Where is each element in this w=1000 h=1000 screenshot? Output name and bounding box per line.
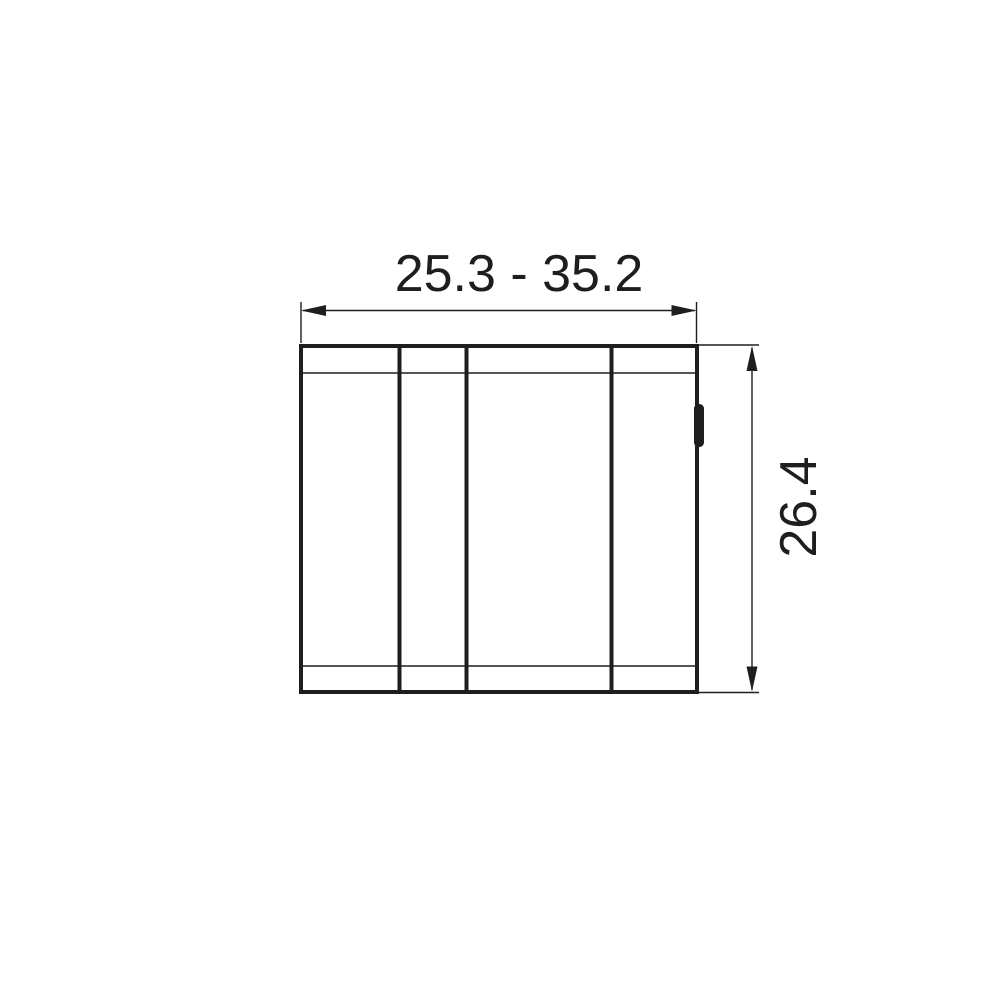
device-body-outline xyxy=(301,346,697,692)
width-arrowhead-right xyxy=(672,305,697,316)
width-dimension-label: 25.3 - 35.2 xyxy=(395,245,644,303)
drawing-canvas: 25.3 - 35.2 26.4 xyxy=(0,0,1000,1000)
height-dimension-label: 26.4 xyxy=(770,456,828,557)
width-dimension: 25.3 - 35.2 xyxy=(301,245,697,343)
technical-drawing: 25.3 - 35.2 26.4 xyxy=(0,0,1000,1000)
height-arrowhead-bottom xyxy=(747,667,758,692)
device-body xyxy=(301,346,704,692)
height-arrowhead-top xyxy=(747,346,758,371)
side-latch xyxy=(694,404,704,447)
height-dimension: 26.4 xyxy=(699,345,828,693)
width-arrowhead-left xyxy=(301,305,326,316)
